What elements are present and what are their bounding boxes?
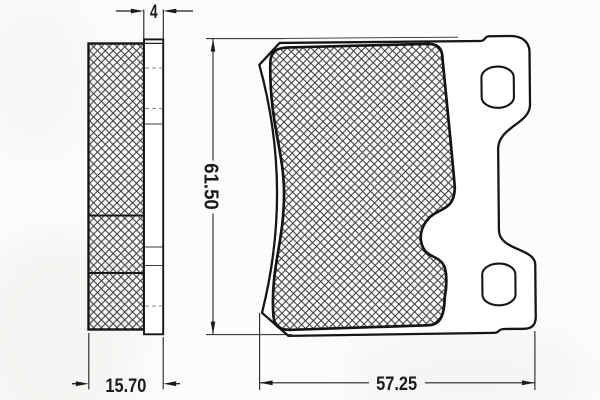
svg-text:4: 4 (150, 1, 158, 23)
svg-text:61.50: 61.50 (199, 163, 221, 210)
svg-text:57.25: 57.25 (376, 373, 417, 395)
svg-text:15.70: 15.70 (105, 374, 146, 396)
